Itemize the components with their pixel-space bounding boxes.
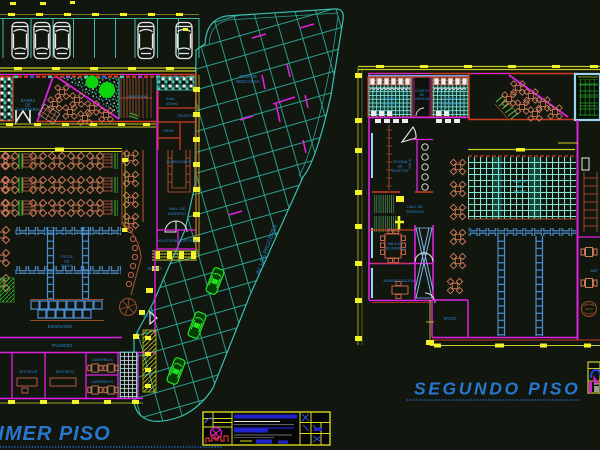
svg-text:GRADERIA: GRADERIA — [127, 94, 148, 99]
svg-text:CAFETERIA: CAFETERIA — [16, 107, 40, 112]
svg-text:SALA: SALA — [408, 159, 412, 169]
svg-text:DESCARGA: DESCARGA — [236, 79, 260, 84]
svg-text:PORTERIA: PORTERIA — [179, 239, 198, 243]
svg-text:LIMPIEZA: LIMPIEZA — [415, 97, 430, 101]
svg-text:BAR: BAR — [591, 269, 599, 273]
svg-text:VESTIDOR: VESTIDOR — [19, 370, 38, 374]
svg-text:SALA: SALA — [142, 313, 153, 318]
svg-text:ESCENARIO: ESCENARIO — [48, 324, 73, 329]
svg-text:BAILE: BAILE — [514, 189, 527, 194]
svg-text:DAMAS: DAMAS — [383, 101, 398, 106]
svg-text:BOLETERIA: BOLETERIA — [157, 239, 178, 243]
svg-text:REUNIONES: REUNIONES — [384, 247, 406, 251]
svg-text:SALA DE: SALA DE — [388, 242, 404, 246]
svg-text:SERVICIO: SERVICIO — [406, 210, 424, 214]
svg-text:100m2: 100m2 — [166, 101, 179, 106]
svg-text:BOLETOS: BOLETOS — [392, 169, 410, 173]
svg-text:PRIMER PISO: PRIMER PISO — [0, 423, 111, 445]
svg-text:VARONES: VARONES — [440, 101, 460, 106]
svg-text:HALL DE: HALL DE — [407, 205, 423, 209]
svg-text:SSHH: SSHH — [163, 128, 174, 133]
svg-text:PASADIZO: PASADIZO — [52, 343, 74, 348]
svg-text:BAILE: BAILE — [61, 263, 73, 268]
svg-text:INGRESO: INGRESO — [168, 211, 186, 216]
svg-text:DEPOSITO: DEPOSITO — [56, 370, 75, 374]
svg-text:CAMERINO B: CAMERINO B — [91, 380, 113, 384]
svg-text:SEGUNDO PISO: SEGUNDO PISO — [414, 379, 580, 399]
svg-text:OFICINA: OFICINA — [393, 160, 408, 164]
svg-text:DE: DE — [398, 165, 404, 169]
svg-text:VACIO: VACIO — [444, 316, 457, 321]
svg-text:CAMERINO A: CAMERINO A — [91, 358, 113, 362]
svg-text:ALMACENAJE: ALMACENAJE — [166, 160, 192, 164]
